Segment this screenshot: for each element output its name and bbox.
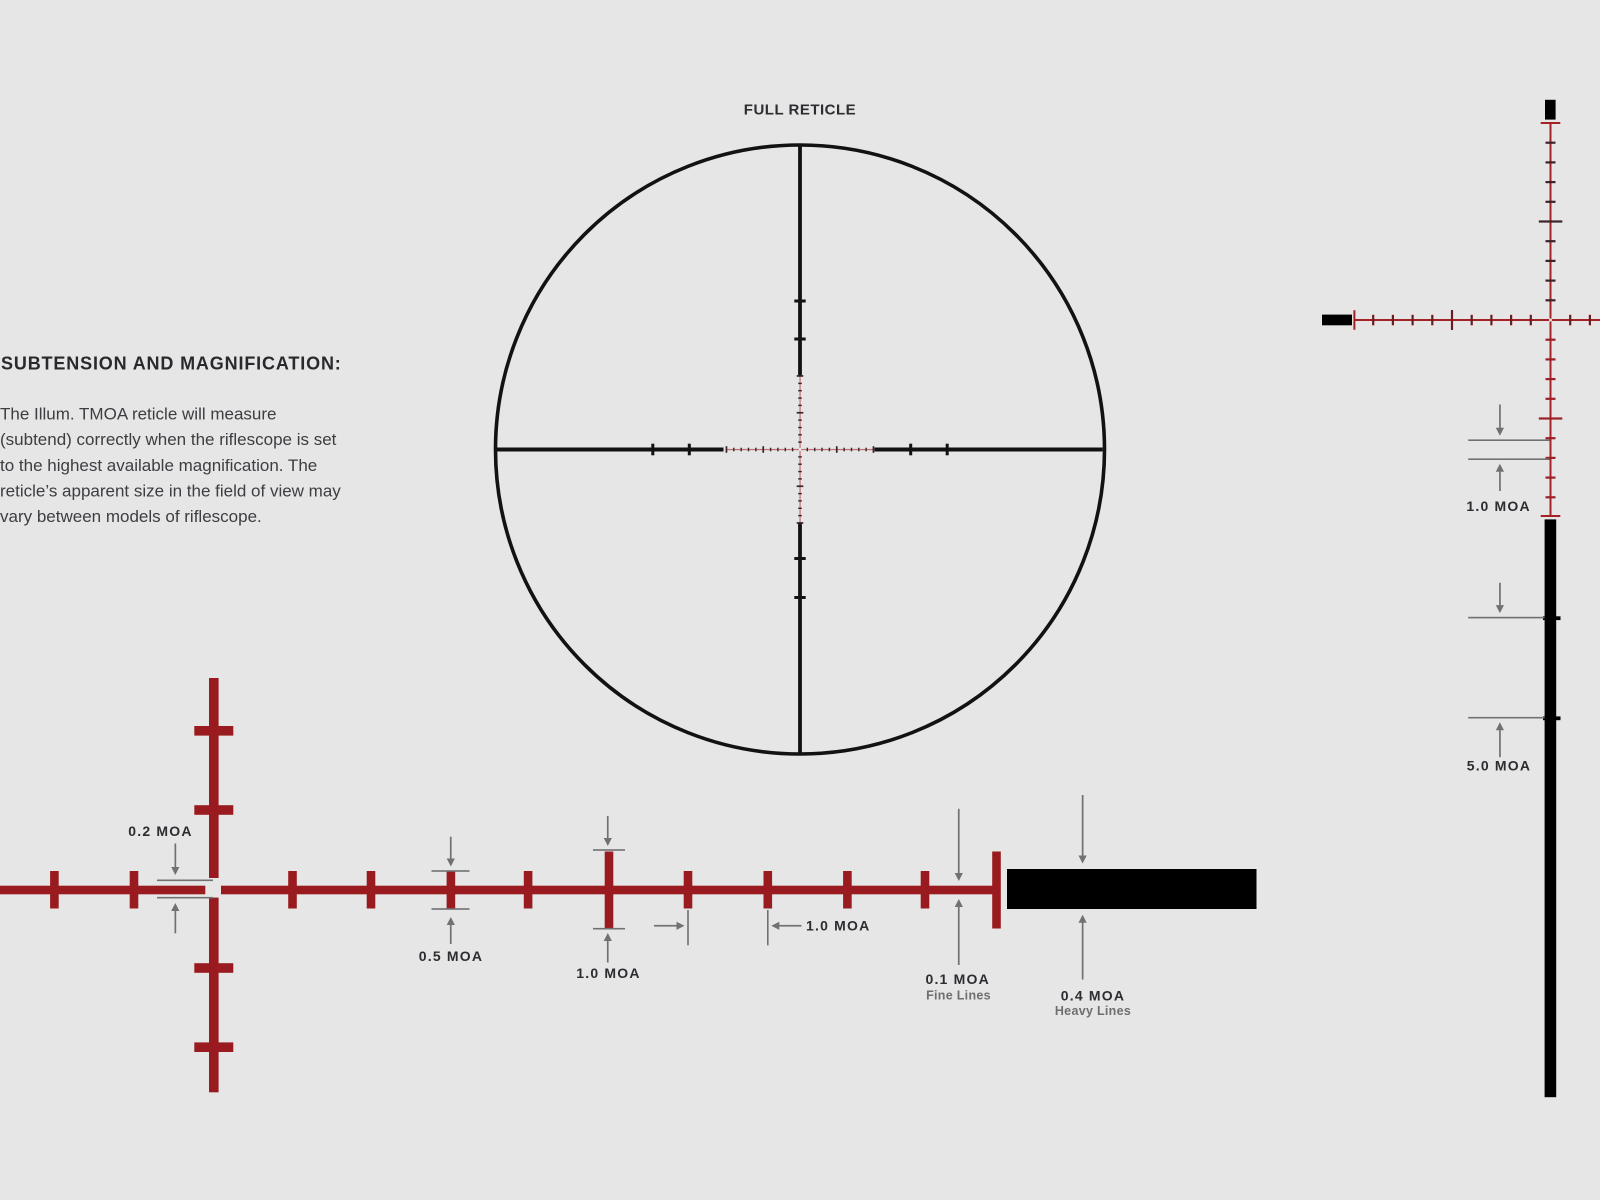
- svg-text:1.0 MOA: 1.0 MOA: [1466, 498, 1530, 514]
- svg-text:reticle’s apparent size in the: reticle’s apparent size in the field of …: [0, 481, 341, 500]
- svg-text:The Illum. TMOA reticle will m: The Illum. TMOA reticle will measure: [0, 405, 276, 424]
- svg-text:0.5 MOA: 0.5 MOA: [419, 948, 483, 964]
- svg-text:0.4 MOA: 0.4 MOA: [1061, 988, 1125, 1004]
- svg-text:5.0 MOA: 5.0 MOA: [1467, 757, 1531, 773]
- svg-text:(subtend) correctly when the r: (subtend) correctly when the riflescope …: [0, 430, 337, 449]
- svg-text:Fine Lines: Fine Lines: [926, 989, 991, 1003]
- svg-text:0.2 MOA: 0.2 MOA: [128, 823, 192, 839]
- svg-text:FULL RETICLE: FULL RETICLE: [744, 101, 856, 118]
- svg-text:1.0 MOA: 1.0 MOA: [576, 965, 640, 981]
- svg-text:Heavy Lines: Heavy Lines: [1055, 1004, 1131, 1018]
- svg-text:to the highest available magni: to the highest available magnification. …: [0, 456, 317, 475]
- svg-text:vary between models of riflesc: vary between models of riflescope.: [0, 507, 262, 526]
- svg-text:1.0 MOA: 1.0 MOA: [806, 918, 870, 934]
- svg-text:0.1 MOA: 0.1 MOA: [925, 971, 989, 987]
- svg-text:SUBTENSION AND MAGNIFICATION:: SUBTENSION AND MAGNIFICATION:: [1, 354, 342, 374]
